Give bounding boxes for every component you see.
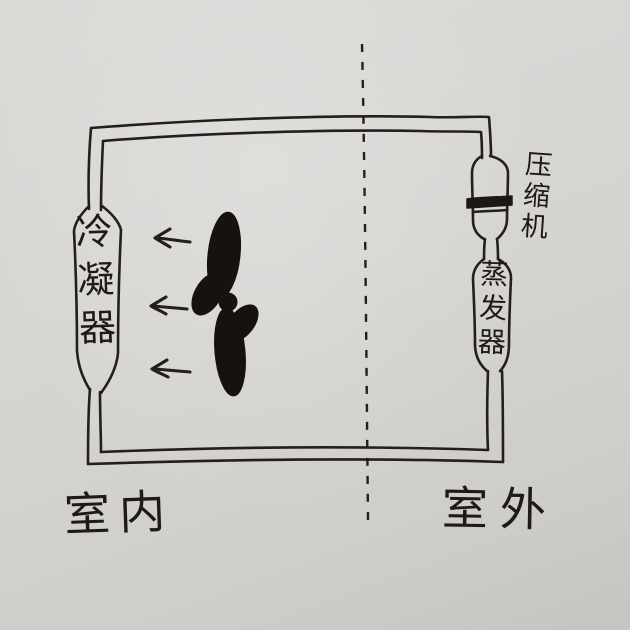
fan-icon (185, 211, 264, 398)
compressor-label: 压缩机 (517, 149, 550, 244)
airflow-arrow-left-icon (152, 360, 190, 377)
condenser-label: 冷凝器 (71, 211, 113, 356)
evaporator-label: 蒸发器 (475, 259, 507, 362)
pipe-loop (88, 116, 503, 464)
paper-sketch: 冷凝器 压缩机 蒸发器 室内 室外 (0, 0, 630, 630)
compressor-piston-band (467, 196, 512, 208)
indoor-zone-label: 室内 (63, 475, 175, 545)
airflow-arrow-left-icon (151, 297, 187, 314)
airflow-arrow-left-icon (155, 229, 190, 247)
outdoor-zone-label: 室外 (441, 472, 558, 540)
airflow-arrows (151, 229, 190, 377)
